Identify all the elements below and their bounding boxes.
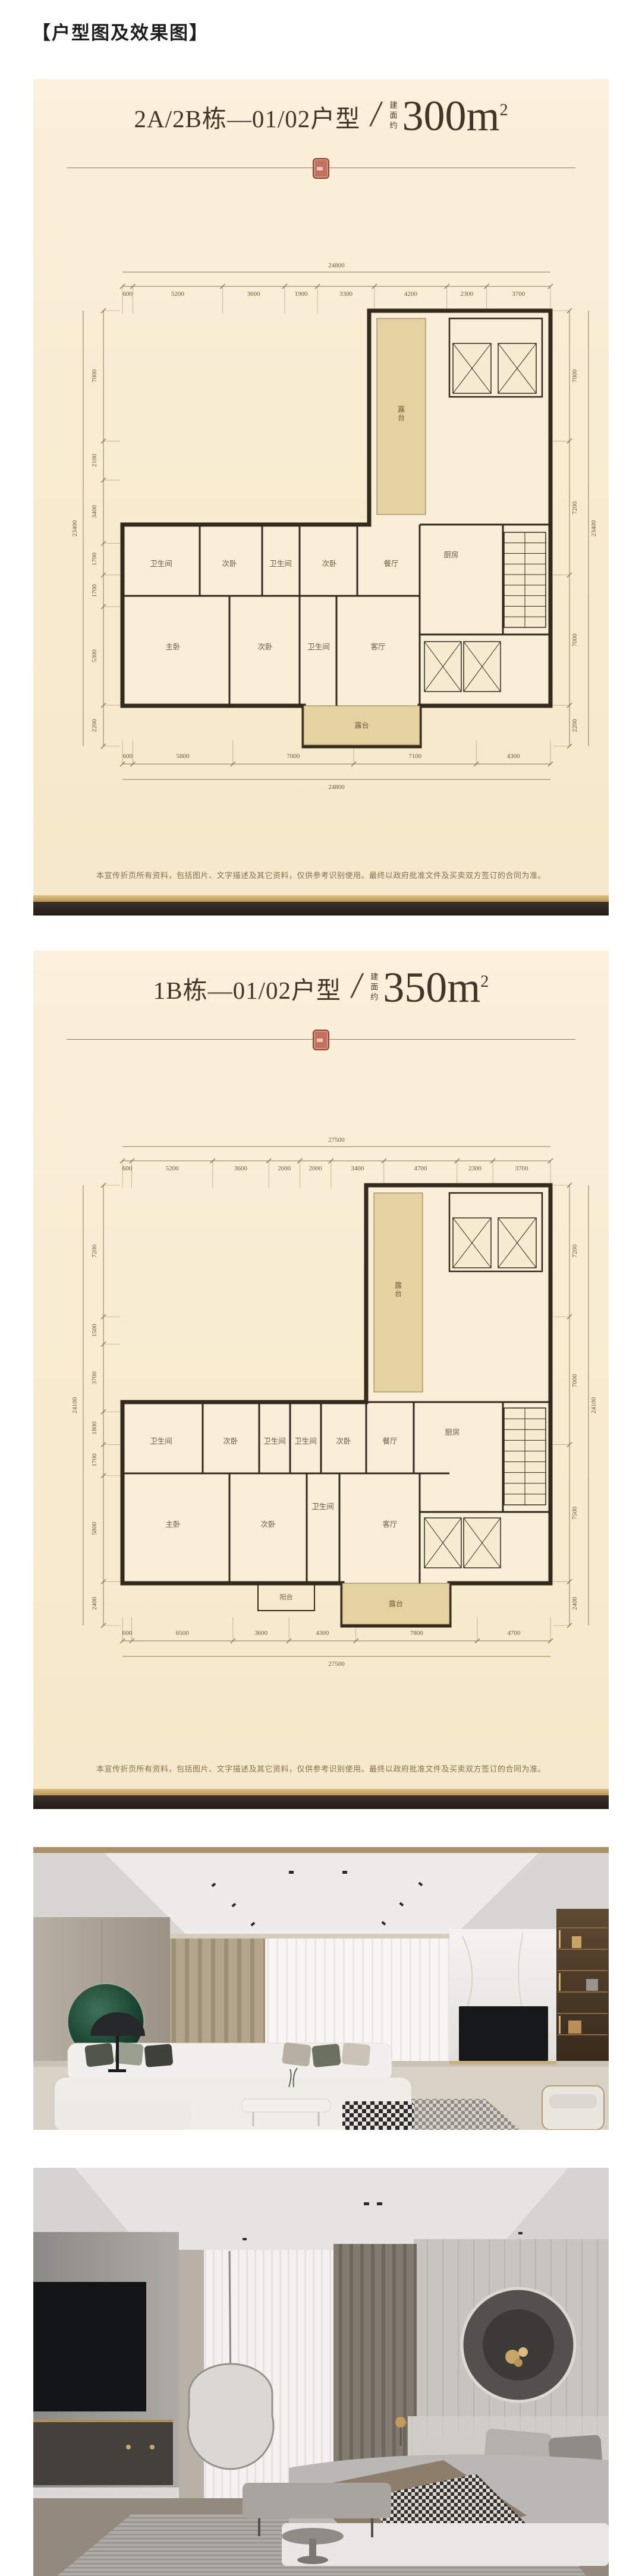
left-wall xyxy=(33,2232,179,2487)
svg-text:5800: 5800 xyxy=(177,753,190,760)
svg-text:7000: 7000 xyxy=(287,753,300,760)
svg-text:7200: 7200 xyxy=(571,501,578,515)
svg-text:3300: 3300 xyxy=(339,291,353,298)
svg-text:7000: 7000 xyxy=(571,369,578,383)
title-divider xyxy=(67,168,575,168)
svg-text:卫生间: 卫生间 xyxy=(311,1502,334,1511)
checkered-ottoman xyxy=(342,2101,414,2130)
svg-text:5200: 5200 xyxy=(166,1165,180,1172)
plan-title-slash-icon: / xyxy=(368,93,384,135)
floorplan-card-300: 2A/2B栋—01/02户型 / 建面约 300m2 2480060052003… xyxy=(33,79,609,916)
svg-text:次卧: 次卧 xyxy=(223,1437,238,1445)
plan-title: 1B栋—01/02户型 / 建面约 350m2 xyxy=(33,951,609,1011)
svg-text:露台: 露台 xyxy=(395,1281,402,1298)
living-room-photo xyxy=(33,1847,609,2130)
plan-title-block: 2A/2B栋—01/02户型 xyxy=(134,99,361,134)
svg-text:露台: 露台 xyxy=(389,1599,403,1608)
svg-text:卫生间: 卫生间 xyxy=(269,560,292,568)
svg-text:1700: 1700 xyxy=(91,553,98,566)
svg-text:7000: 7000 xyxy=(571,1374,578,1387)
drape-curtain xyxy=(170,1939,265,2061)
svg-text:7000: 7000 xyxy=(91,369,98,383)
plan-title-area-value: 300m2 xyxy=(402,96,508,136)
floorplan-card-350: 1B栋—01/02户型 / 建面约 350m2 2750060052003600… xyxy=(33,951,609,1809)
svg-text:27500: 27500 xyxy=(328,1660,345,1668)
svg-text:1700: 1700 xyxy=(91,1453,98,1467)
svg-text:3400: 3400 xyxy=(351,1165,364,1172)
svg-text:2000: 2000 xyxy=(278,1165,291,1172)
svg-text:客厅: 客厅 xyxy=(382,1520,397,1529)
tv-screen xyxy=(33,2282,146,2411)
svg-text:3600: 3600 xyxy=(247,291,261,298)
svg-text:1900: 1900 xyxy=(294,291,308,298)
svg-text:次卧: 次卧 xyxy=(336,1437,351,1445)
svg-text:600: 600 xyxy=(122,753,133,760)
svg-text:餐厅: 餐厅 xyxy=(383,559,398,568)
footer-bar xyxy=(33,1795,609,1809)
svg-text:卫生间: 卫生间 xyxy=(263,1437,286,1445)
shelving-unit xyxy=(556,1909,609,2061)
bedroom-photo xyxy=(33,2168,609,2576)
svg-text:2400: 2400 xyxy=(571,1597,578,1611)
svg-text:次卧: 次卧 xyxy=(260,1520,275,1529)
svg-text:2200: 2200 xyxy=(571,719,578,733)
svg-text:2200: 2200 xyxy=(91,719,98,733)
svg-text:4200: 4200 xyxy=(404,291,418,298)
page-title: 【户型图及效果图】 xyxy=(32,18,209,45)
svg-text:主卧: 主卧 xyxy=(165,1520,180,1529)
svg-text:2400: 2400 xyxy=(91,1597,98,1611)
plan-title-area-label: 建面约 xyxy=(368,973,379,1003)
svg-text:24100: 24100 xyxy=(71,1397,78,1413)
svg-text:厨房: 厨房 xyxy=(443,550,458,559)
svg-text:卫生间: 卫生间 xyxy=(294,1437,317,1445)
svg-text:24100: 24100 xyxy=(590,1397,597,1413)
footer-bar xyxy=(33,902,609,916)
svg-text:次卧: 次卧 xyxy=(222,560,237,568)
svg-text:主卧: 主卧 xyxy=(165,643,180,651)
svg-text:次卧: 次卧 xyxy=(322,560,336,568)
svg-text:600: 600 xyxy=(122,291,133,298)
svg-text:露台: 露台 xyxy=(398,405,405,422)
svg-text:卫生间: 卫生间 xyxy=(150,560,172,568)
armchair xyxy=(542,2086,604,2130)
svg-text:阳台: 阳台 xyxy=(280,1593,293,1601)
tv-wall xyxy=(449,1929,556,2064)
svg-text:2100: 2100 xyxy=(91,454,98,468)
plan-title-area-label: 建面约 xyxy=(387,101,398,131)
plan-title-block: 1B栋—01/02户型 xyxy=(153,970,341,1006)
plan-title: 2A/2B栋—01/02户型 / 建面约 300m2 xyxy=(33,79,609,139)
window-wall xyxy=(170,1934,449,2061)
left-wall xyxy=(33,1917,170,2061)
svg-text:5200: 5200 xyxy=(171,291,185,298)
svg-text:7200: 7200 xyxy=(571,1244,578,1258)
svg-text:3600: 3600 xyxy=(254,1630,268,1637)
floorplan-drawing-350: 2750060052003600200020003400470023003700… xyxy=(33,1129,609,1678)
svg-text:2000: 2000 xyxy=(309,1165,323,1172)
svg-text:24800: 24800 xyxy=(328,262,345,269)
svg-text:2300: 2300 xyxy=(468,1165,482,1172)
tv-screen xyxy=(459,2006,548,2061)
svg-text:3600: 3600 xyxy=(234,1165,248,1172)
svg-text:客厅: 客厅 xyxy=(370,642,385,651)
svg-text:600: 600 xyxy=(122,1165,133,1172)
svg-text:1500: 1500 xyxy=(91,1324,98,1337)
sheer-curtain xyxy=(265,1939,449,2061)
svg-text:7800: 7800 xyxy=(410,1630,424,1637)
svg-text:卫生间: 卫生间 xyxy=(307,643,330,651)
svg-text:7500: 7500 xyxy=(571,1506,578,1520)
svg-text:7000: 7000 xyxy=(571,633,578,647)
svg-text:7100: 7100 xyxy=(408,753,422,760)
svg-text:4300: 4300 xyxy=(507,753,521,760)
plan-title-slash-icon: / xyxy=(349,965,365,1007)
disclaimer-text: 本宣传折页所有资料，包括图片、文字描述及其它资料，仅供参考识别使用。最终以政府批… xyxy=(33,1763,609,1774)
svg-text:5800: 5800 xyxy=(91,1522,98,1536)
seal-stamp-icon xyxy=(313,158,329,179)
svg-text:24800: 24800 xyxy=(328,784,345,791)
disclaimer-text: 本宣传折页所有资料，包括图片、文字描述及其它资料，仅供参考识别使用。最终以政府批… xyxy=(33,869,609,880)
svg-text:3700: 3700 xyxy=(515,1165,529,1172)
svg-text:次卧: 次卧 xyxy=(257,643,272,651)
svg-text:3700: 3700 xyxy=(512,291,525,298)
seal-stamp-icon xyxy=(313,1030,329,1050)
plan-title-area-value: 350m2 xyxy=(383,967,489,1008)
svg-text:23400: 23400 xyxy=(590,520,597,536)
floorplan-drawing-300: 2480060052003600190033004200230037006005… xyxy=(33,254,609,801)
svg-text:1700: 1700 xyxy=(91,584,98,598)
svg-text:2300: 2300 xyxy=(460,291,474,298)
svg-text:餐厅: 餐厅 xyxy=(382,1437,397,1445)
svg-text:27500: 27500 xyxy=(328,1137,345,1144)
svg-text:厨房: 厨房 xyxy=(445,1428,460,1437)
svg-text:露台: 露台 xyxy=(354,721,369,730)
gold-strip xyxy=(33,1789,609,1795)
svg-text:23400: 23400 xyxy=(71,520,78,536)
svg-text:3400: 3400 xyxy=(91,505,98,519)
svg-text:600: 600 xyxy=(122,1630,133,1637)
svg-text:4700: 4700 xyxy=(507,1630,521,1637)
svg-text:6500: 6500 xyxy=(176,1630,190,1637)
title-divider xyxy=(67,1039,575,1040)
svg-text:4300: 4300 xyxy=(316,1630,329,1637)
svg-text:3700: 3700 xyxy=(91,1371,98,1385)
svg-text:7200: 7200 xyxy=(91,1244,98,1258)
svg-text:5300: 5300 xyxy=(91,649,98,663)
svg-text:1800: 1800 xyxy=(91,1421,98,1435)
svg-text:4700: 4700 xyxy=(414,1165,427,1172)
gold-strip xyxy=(33,895,609,902)
credenza xyxy=(33,2420,173,2485)
svg-text:卫生间: 卫生间 xyxy=(150,1437,172,1445)
